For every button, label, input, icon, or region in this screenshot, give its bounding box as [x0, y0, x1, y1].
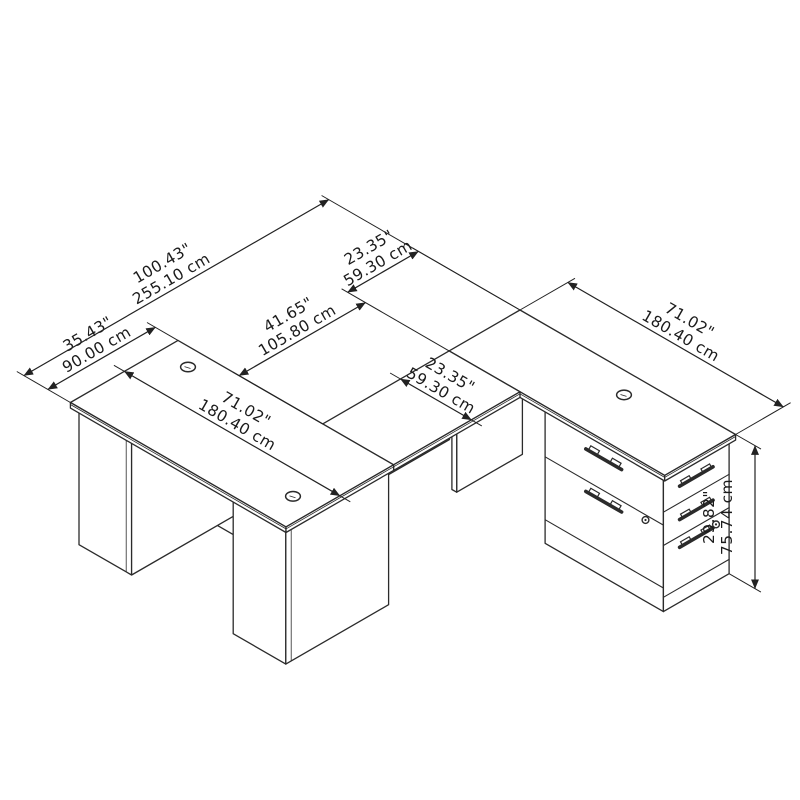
front-desk: [70, 340, 393, 664]
isometric-desk-drawing: 35.43" 90.00 cm 100.43" 255.10 cm 41.65"…: [0, 0, 800, 800]
dimension-credenza-depth: 23.35" 59.30 cm: [332, 221, 419, 292]
u-desk-dimension-diagram: 35.43" 90.00 cm 100.43" 255.10 cm 41.65"…: [0, 0, 800, 800]
dim-height-inches: 29.82": [700, 490, 718, 544]
grommet-hole: [286, 492, 301, 502]
dim-height-cm: 75.74 cm: [718, 479, 736, 555]
dimension-knee-clearance: 41.65" 105.80 cm: [239, 285, 365, 375]
grommet-hole: [617, 390, 632, 400]
grommet-hole: [181, 362, 196, 372]
credenza: [449, 310, 735, 612]
